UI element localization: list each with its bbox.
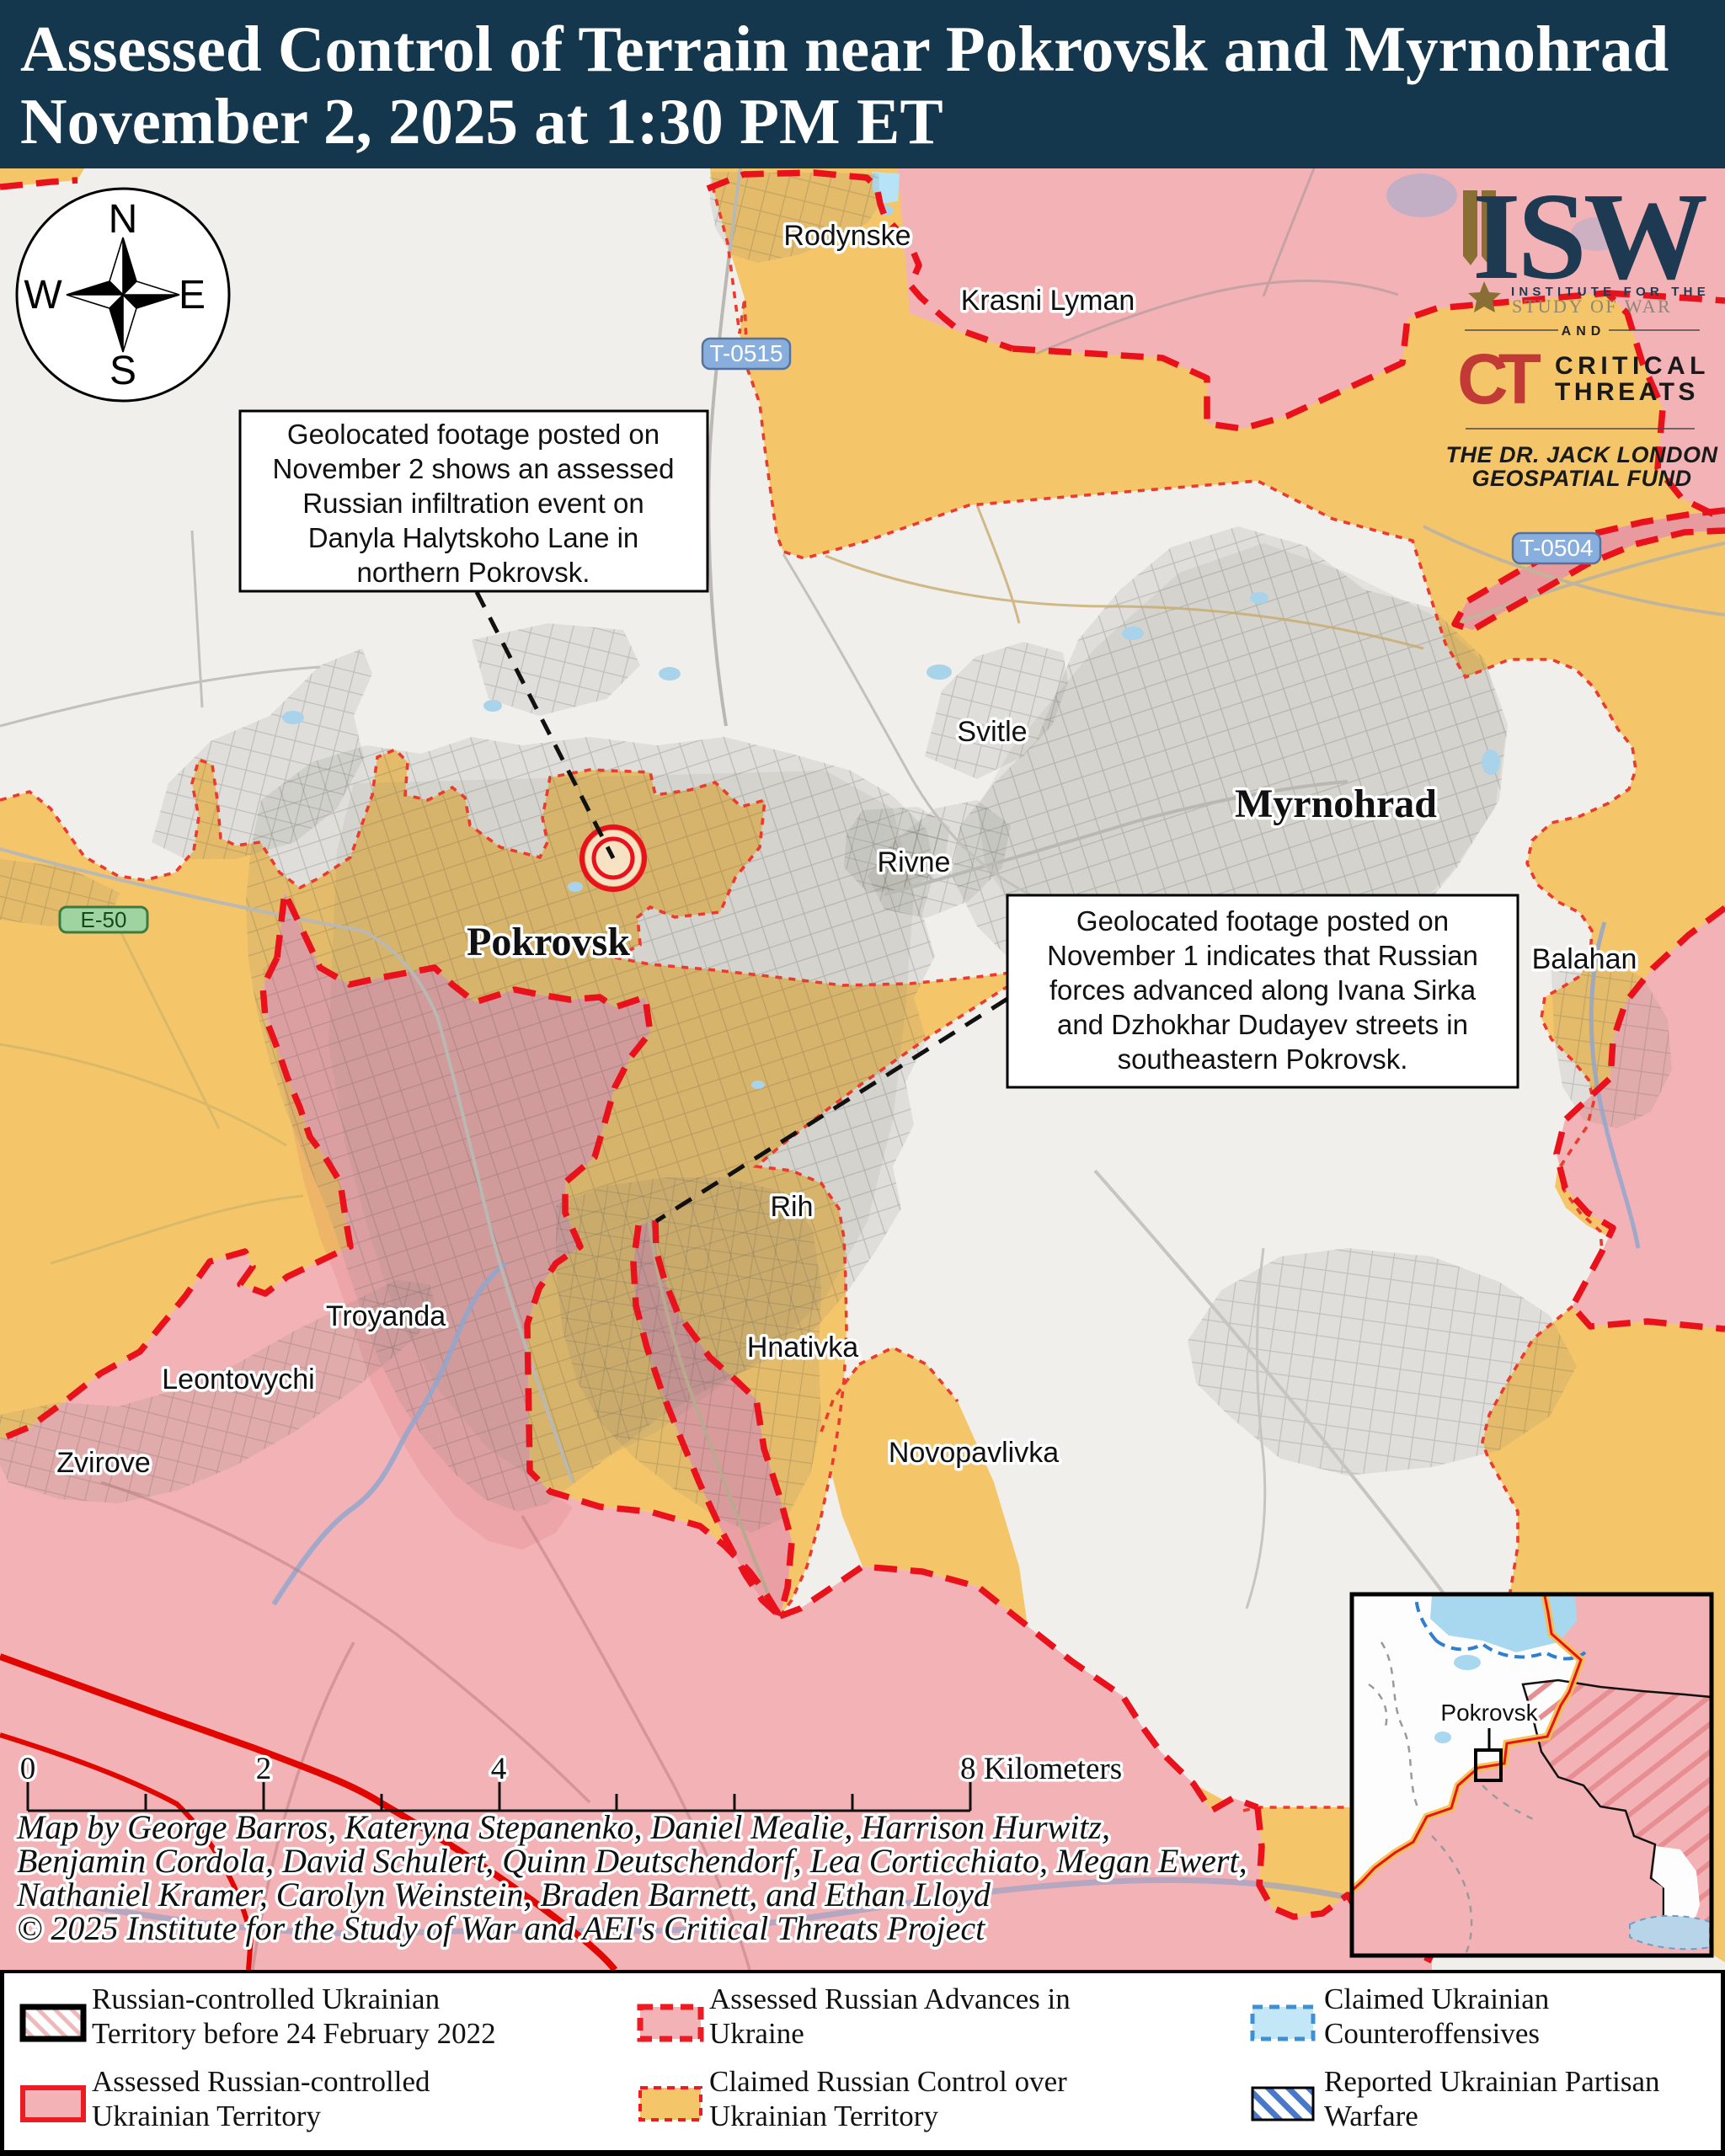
svg-text:Hnativka: Hnativka — [747, 1331, 858, 1364]
svg-text:Krasni Lyman: Krasni Lyman — [961, 285, 1135, 317]
svg-text:Leontovychi: Leontovychi — [162, 1364, 314, 1396]
svg-text:CRITICAL: CRITICAL — [1555, 352, 1710, 380]
svg-text:CT: CT — [1457, 339, 1541, 419]
svg-text:Balahan: Balahan — [1532, 943, 1637, 975]
svg-text:E: E — [179, 273, 206, 318]
svg-text:W: W — [24, 273, 62, 318]
svg-text:THE DR. JACK LONDON: THE DR. JACK LONDON — [1445, 442, 1717, 467]
svg-text:© 2025 Institute for the Study: © 2025 Institute for the Study of War an… — [17, 1909, 985, 1947]
svg-text:northern Pokrovsk.: northern Pokrovsk. — [357, 557, 590, 588]
svg-text:Novopavlivka: Novopavlivka — [889, 1437, 1059, 1469]
svg-text:southeastern Pokrovsk.: southeastern Pokrovsk. — [1118, 1043, 1408, 1075]
svg-text:S: S — [109, 349, 136, 393]
svg-text:Rodynske: Rodynske — [783, 220, 911, 252]
svg-text:8 Kilometers: 8 Kilometers — [960, 1752, 1122, 1786]
svg-text:T-0515: T-0515 — [709, 340, 782, 366]
svg-text:Map by George Barros, Kateryna: Map by George Barros, Kateryna Stepanenk… — [16, 1808, 1110, 1846]
svg-text:Rivne: Rivne — [878, 846, 951, 878]
svg-text:THREATS: THREATS — [1555, 378, 1699, 406]
svg-text:T-0504: T-0504 — [1519, 535, 1593, 561]
svg-text:N: N — [109, 197, 138, 242]
svg-text:Benjamin Cordola, David Schule: Benjamin Cordola, David Schulert, Quinn … — [17, 1842, 1247, 1880]
svg-text:4: 4 — [491, 1752, 507, 1786]
svg-text:Pokrovsk: Pokrovsk — [1440, 1700, 1538, 1726]
svg-text:GEOSPATIAL FUND: GEOSPATIAL FUND — [1471, 466, 1691, 491]
svg-text:AND: AND — [1562, 324, 1606, 339]
svg-text:Geolocated footage posted on: Geolocated footage posted on — [1076, 905, 1449, 937]
svg-text:Danyla Halytskoho Lane in: Danyla Halytskoho Lane in — [308, 522, 639, 553]
svg-text:Troyanda: Troyanda — [326, 1300, 446, 1332]
svg-text:Geolocated footage posted on: Geolocated footage posted on — [287, 419, 660, 450]
svg-text:November 1 indicates that Russ: November 1 indicates that Russian — [1047, 940, 1478, 971]
svg-text:November 2 shows an assessed: November 2 shows an assessed — [273, 453, 675, 484]
svg-text:2: 2 — [256, 1752, 272, 1786]
svg-text:Svitle: Svitle — [957, 716, 1027, 748]
svg-text:Pokrovsk: Pokrovsk — [467, 920, 630, 964]
svg-text:Nathaniel Kramer, Carolyn Wein: Nathaniel Kramer, Carolyn Weinstein, Bra… — [16, 1876, 991, 1913]
svg-text:Russian infiltration event on: Russian infiltration event on — [302, 488, 644, 519]
svg-text:and Dzhokhar Dudayev streets i: and Dzhokhar Dudayev streets in — [1057, 1009, 1468, 1040]
svg-text:Myrnohrad: Myrnohrad — [1235, 782, 1437, 826]
svg-text:Zvirove: Zvirove — [56, 1447, 150, 1479]
svg-text:Rih: Rih — [770, 1191, 813, 1223]
svg-text:0: 0 — [20, 1752, 36, 1786]
svg-text:STUDY OF WAR: STUDY OF WAR — [1512, 296, 1672, 317]
svg-text:E-50: E-50 — [81, 907, 127, 932]
svg-text:forces advanced along Ivana Si: forces advanced along Ivana Sirka — [1049, 974, 1477, 1006]
